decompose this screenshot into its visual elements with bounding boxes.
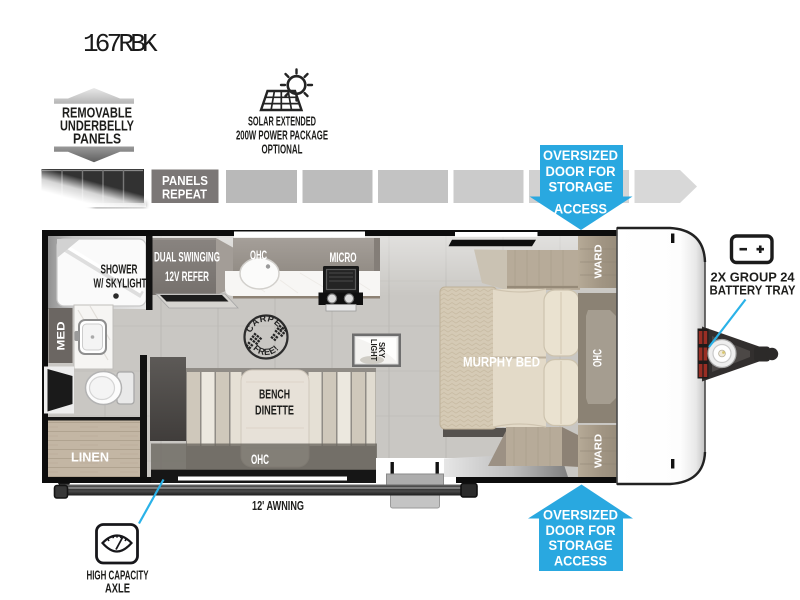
svg-text:12V REFER: 12V REFER [165,269,209,284]
svg-text:ACCESS: ACCESS [554,202,607,217]
svg-text:200W POWER PACKAGE: 200W POWER PACKAGE [236,129,328,143]
svg-text:OHC: OHC [251,452,269,467]
svg-text:LINEN: LINEN [71,450,109,465]
svg-text:AXLE: AXLE [105,582,130,596]
svg-text:PANELS: PANELS [162,174,208,188]
svg-text:2X GROUP 24: 2X GROUP 24 [711,271,795,285]
svg-text:STORAGE: STORAGE [549,538,613,553]
svg-text:DINETTE: DINETTE [255,403,294,418]
svg-text:SOLAR EXTENDED: SOLAR EXTENDED [248,115,316,129]
svg-text:OHC: OHC [250,248,267,263]
svg-text:DOOR FOR: DOOR FOR [546,523,616,538]
svg-text:12' AWNING: 12' AWNING [252,499,304,513]
svg-text:SHOWER: SHOWER [101,263,138,277]
svg-text:MED: MED [56,321,68,350]
svg-text:DOOR FOR: DOOR FOR [546,164,616,179]
svg-text:MURPHY BED: MURPHY BED [463,354,540,370]
svg-text:WARD: WARD [593,244,605,278]
svg-text:BATTERY TRAY: BATTERY TRAY [710,284,797,298]
svg-text:OVERSIZED: OVERSIZED [543,148,618,163]
svg-text:167RBK: 167RBK [83,29,158,59]
svg-text:W/ SKYLIGHT: W/ SKYLIGHT [94,277,147,291]
svg-text:ACCESS: ACCESS [554,554,607,569]
svg-text:REPEAT: REPEAT [162,188,207,202]
svg-text:MICRO: MICRO [330,250,357,265]
svg-text:WARD: WARD [593,434,605,468]
svg-text:HIGH CAPACITY: HIGH CAPACITY [87,569,149,583]
svg-text:LIGHT: LIGHT [369,339,378,361]
svg-text:OVERSIZED: OVERSIZED [543,508,618,523]
svg-text:DUAL SWINGING: DUAL SWINGING [154,250,220,265]
svg-text:BENCH: BENCH [259,387,290,402]
svg-text:OPTIONAL: OPTIONAL [262,143,303,157]
svg-text:PANELS: PANELS [73,132,121,148]
svg-text:STORAGE: STORAGE [549,180,613,195]
svg-text:OHC: OHC [593,349,605,367]
